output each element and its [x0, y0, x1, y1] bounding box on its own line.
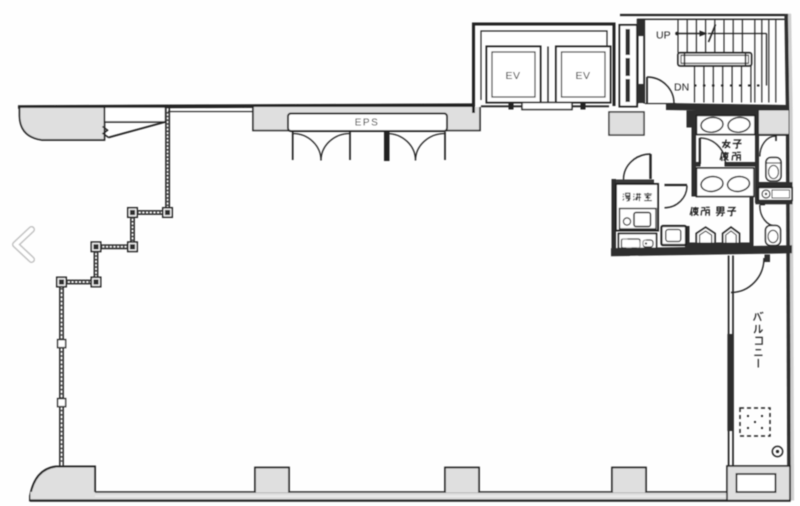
svg-text:EV: EV: [505, 70, 520, 82]
svg-text:DN: DN: [674, 82, 689, 94]
svg-text:EPS: EPS: [355, 118, 380, 129]
svg-text:EV: EV: [575, 70, 590, 82]
svg-text:UP: UP: [656, 30, 671, 42]
